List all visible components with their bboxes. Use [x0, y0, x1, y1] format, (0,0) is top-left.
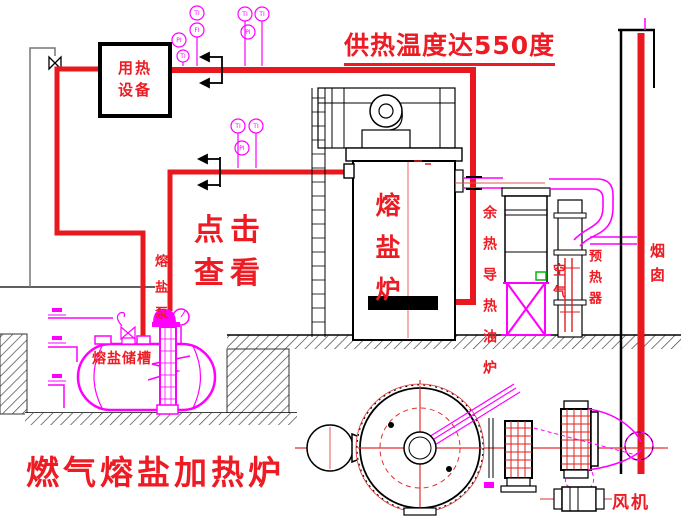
pump-label: 熔盐泵 — [150, 254, 169, 332]
diagram-title: 燃气熔盐加热炉 — [26, 446, 285, 494]
tank-valve-icon — [117, 313, 135, 345]
instrument-tag: PI — [245, 29, 251, 36]
instrument-tag: FI — [194, 27, 199, 34]
instrument-tag: PI — [176, 37, 182, 44]
instrument-bubbles: TI FI PI TI TI PI TI TI PI TI — [172, 6, 269, 168]
instrument-tag: TI — [258, 11, 265, 18]
instrument-tag: TI — [241, 11, 248, 18]
chimney-label: 烟囱 — [647, 243, 668, 291]
heat-user-line2: 设备 — [118, 80, 152, 102]
tank-label: 熔盐储槽 — [92, 348, 152, 368]
instrument-tag: TI — [252, 123, 259, 130]
waste-heat-tower — [501, 188, 551, 335]
furnace-label: 熔盐炉 — [368, 192, 404, 318]
fan-label: 风机 — [612, 488, 650, 513]
diagram-page: TI FI PI TI TI PI TI TI PI TI 用热 设备 供热温度… — [0, 0, 681, 516]
instrument-tag: TI — [193, 10, 200, 17]
waste-heat-furnace-label: 余热导热油炉 — [479, 205, 499, 391]
click-to-view-link[interactable]: 点击 查看 — [194, 210, 266, 296]
instrument-tag: TI — [234, 123, 241, 130]
preheater-label: 预热器 — [584, 249, 603, 312]
heat-user-equipment-box: 用热 设备 — [98, 42, 172, 118]
click-hint-line1[interactable]: 点击 — [194, 210, 266, 253]
instrument-tag: PI — [239, 145, 245, 152]
pipe-tag-mark — [48, 308, 66, 381]
flow-arrow-icon — [199, 53, 222, 189]
fan-icon — [540, 487, 612, 511]
click-hint-line2[interactable]: 查看 — [194, 253, 266, 296]
air-label: 空气 — [548, 263, 567, 307]
supply-temperature-banner: 供热温度达550度 — [344, 26, 555, 66]
instrument-tag: TI — [179, 53, 186, 60]
heat-user-line1: 用热 — [118, 58, 152, 80]
